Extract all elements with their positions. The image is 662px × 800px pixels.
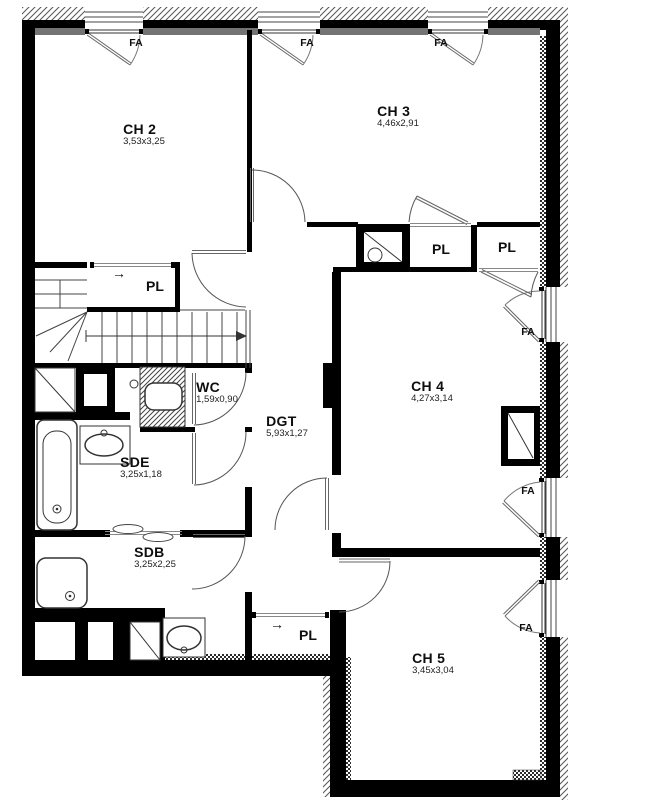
door-ch4 [275,478,329,530]
window-right-2 [503,478,569,537]
room-dims-sde: 3,25x1,18 [120,470,162,480]
fixtures [35,232,541,780]
door-sdb [192,535,245,590]
room-dims-wc: 1,59x0,90 [196,395,238,405]
window-right-3 [504,580,569,637]
toilet [140,367,185,427]
duct-ch4 [501,406,540,466]
door-pl1 [409,196,471,227]
room-dims-ch5: 3,45x3,04 [412,666,454,676]
window-label-right-3: FA [519,623,532,634]
plan-linework [0,0,662,800]
room-label-ch3: CH 3 4,46x2,91 [377,104,419,129]
room-name-ch3: CH 3 [377,104,419,118]
room-label-ch4: CH 4 4,27x3,14 [411,379,453,404]
room-dims-dgt: 5,93x1,27 [266,429,308,439]
interior-walls [22,30,540,660]
slide-arrow-bottom-closet: → [270,617,284,631]
room-name-wc: WC [196,380,238,394]
window-label-top-3: FA [434,38,447,49]
radiator-ch5 [513,770,541,780]
shower [37,558,87,608]
window-label-top-1: FA [129,38,142,49]
room-label-sdb: SDB 3,25x2,25 [134,545,176,570]
window-label-right-2: FA [521,486,534,497]
room-label-sde: SDE 3,25x1,18 [120,455,162,480]
room-label-dgt: DGT 5,93x1,27 [266,414,308,439]
sink-sdb [163,618,205,657]
bathtub [37,420,77,530]
room-label-wc: WC 1,59x0,90 [196,380,238,405]
room-name-ch4: CH 4 [411,379,453,393]
window-label-top-2: FA [300,38,313,49]
window-right-1 [504,287,569,342]
door-ch2 [192,251,246,308]
room-name-sdb: SDB [134,545,176,559]
stairs-direction-arrow [86,330,247,342]
room-name-ch2: CH 2 [123,122,165,136]
closet-label-top-left: PL [146,279,164,293]
door-ch3 [251,168,306,222]
sliding-door-pl-top [90,262,175,268]
room-dims-ch3: 4,46x2,91 [377,119,419,129]
sliding-door-sdb [105,525,182,542]
door-pl2 [479,269,538,298]
windows [85,7,568,637]
room-label-ch2: CH 2 3,53x3,25 [123,122,165,147]
room-dims-ch4: 4,27x3,14 [411,394,453,404]
room-dims-ch2: 3,53x3,25 [123,137,165,147]
closet-label-mid-2: PL [498,240,516,254]
door-sde [193,432,247,485]
closet-label-mid-1: PL [432,242,450,256]
room-name-dgt: DGT [266,414,308,428]
staircase [35,280,250,368]
room-name-sde: SDE [120,455,162,469]
room-label-ch5: CH 5 3,45x3,04 [412,651,454,676]
floor-plan: CH 2 3,53x3,25 CH 3 4,46x2,91 CH 4 4,27x… [0,0,662,800]
slide-arrow-top-closet: → [112,266,126,280]
room-dims-sdb: 3,25x2,25 [134,560,176,570]
door-ch5 [339,559,390,612]
sliding-door-pl-bottom [252,612,329,618]
closet-label-bottom: PL [299,628,317,642]
duct-under-stairs [35,366,138,414]
window-label-right-1: FA [521,327,534,338]
duct-mid [364,232,402,262]
room-name-ch5: CH 5 [412,651,454,665]
